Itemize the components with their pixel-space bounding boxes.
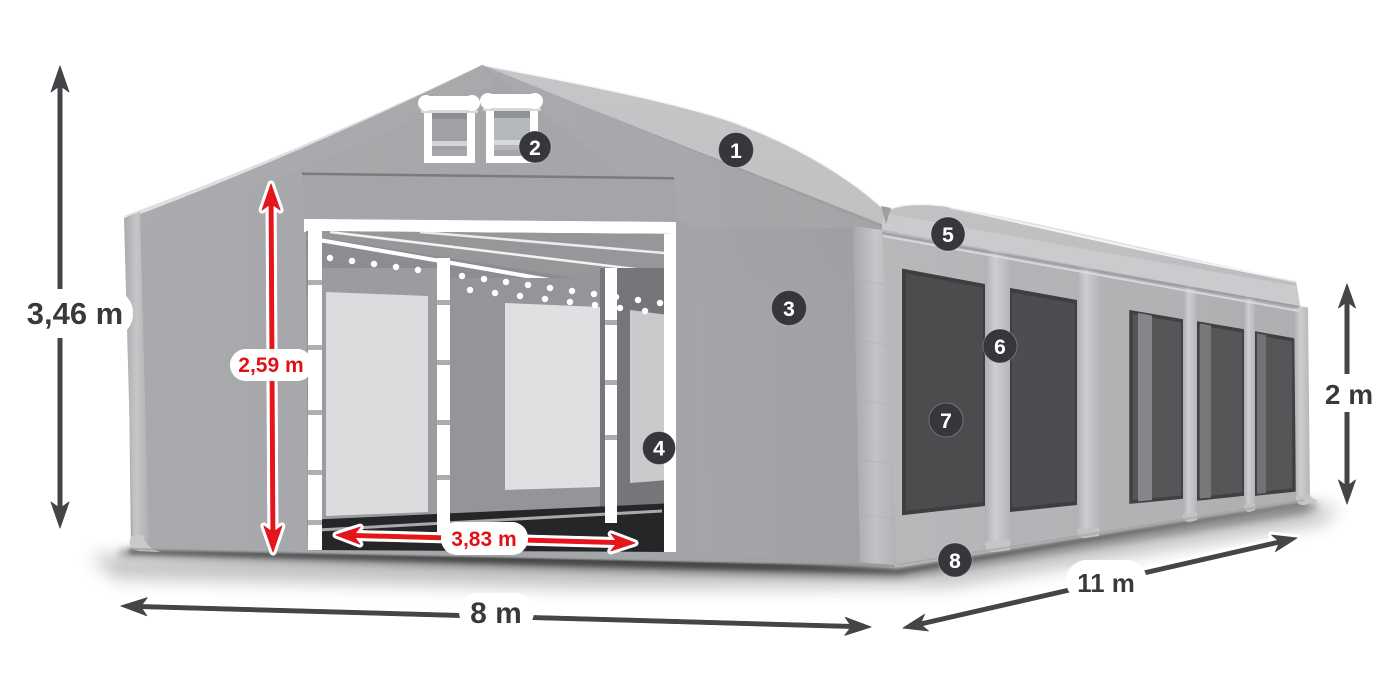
svg-text:1: 1 [730,140,742,163]
svg-text:7: 7 [940,410,952,433]
svg-text:3,83 m: 3,83 m [451,528,516,551]
svg-text:4: 4 [653,438,665,461]
svg-text:2 m: 2 m [1325,379,1373,410]
svg-text:8 m: 8 m [470,597,522,630]
svg-text:3: 3 [783,298,795,321]
svg-text:3,46 m: 3,46 m [27,296,124,331]
svg-text:8: 8 [949,550,961,573]
svg-text:2: 2 [529,137,541,160]
svg-text:5: 5 [942,224,954,247]
svg-text:2,59 m: 2,59 m [238,354,303,377]
svg-text:6: 6 [994,336,1006,359]
svg-text:11 m: 11 m [1077,568,1135,598]
